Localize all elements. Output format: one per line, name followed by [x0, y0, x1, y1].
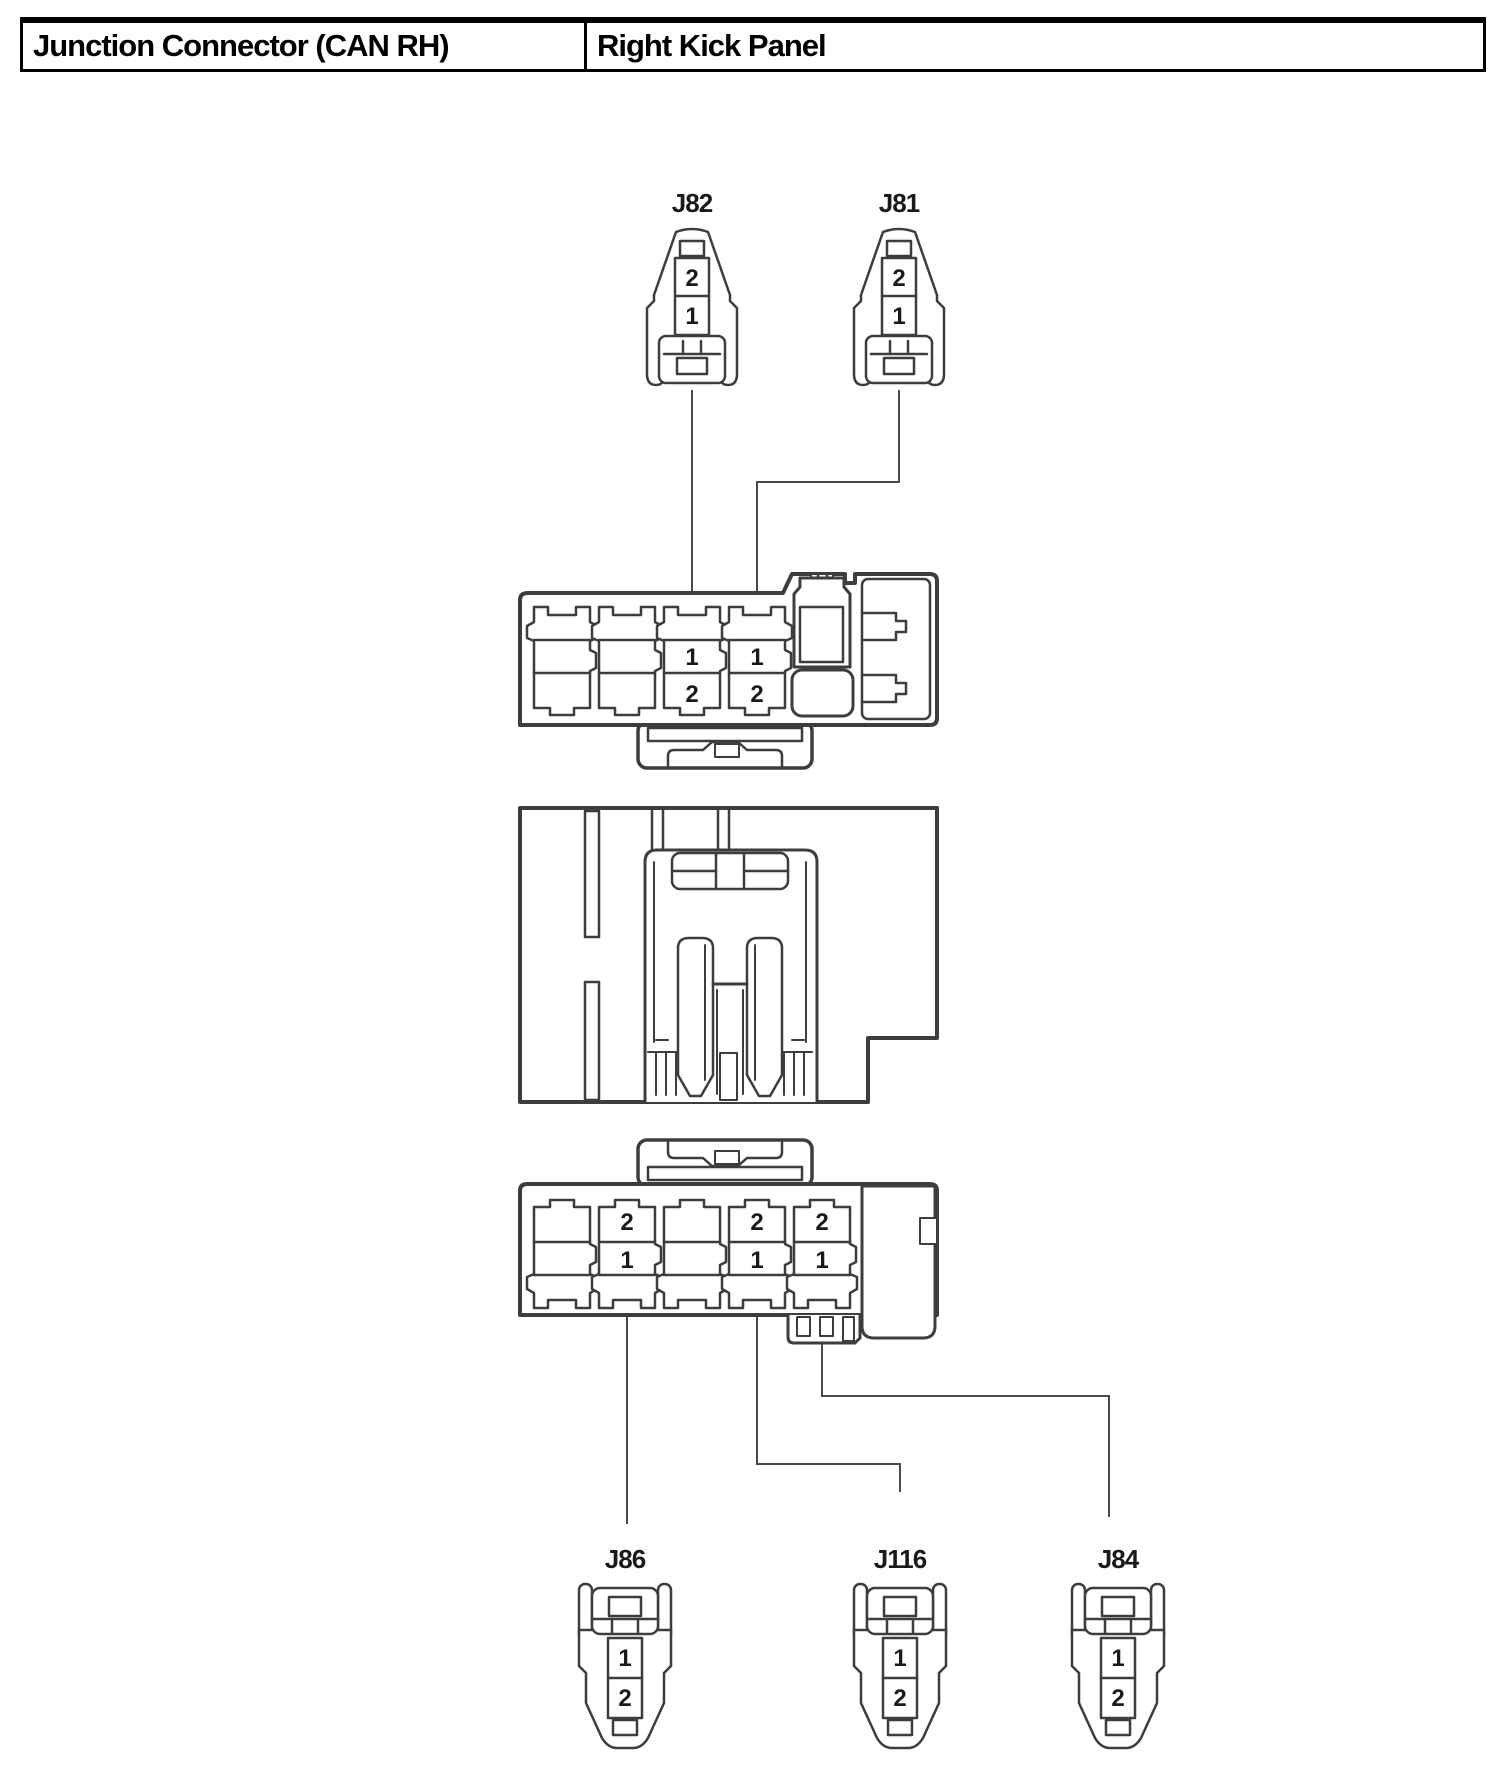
j81-pin-1: 1: [892, 303, 905, 330]
upper-block-mount-tab: [638, 722, 812, 768]
upper-junction-block: [520, 574, 937, 768]
j116-label: J116: [874, 1544, 927, 1574]
j84-label: J84: [1098, 1544, 1140, 1574]
lower-cavity5-pin1: 1: [815, 1247, 828, 1274]
upper-cavity-1: [527, 607, 597, 715]
diagram-canvas: J82 J81 2 1 2 1 1 2 1 2 2 1 2 1 2 1 J86 …: [0, 0, 1504, 1768]
j82-pin-1: 1: [685, 303, 698, 330]
j86-label: J86: [605, 1544, 646, 1574]
upper-block-aux-cavity: [792, 670, 853, 716]
leader-j84: [822, 1343, 1109, 1517]
j81-pin-2: 2: [892, 265, 905, 292]
lower-cavity2-pin2: 2: [620, 1209, 633, 1236]
document-page: Junction Connector (CAN RH) Right Kick P…: [0, 0, 1504, 1768]
lower-cavity-3: [657, 1200, 727, 1308]
lower-block-right-section: [862, 1186, 935, 1338]
j82-label: J82: [672, 188, 713, 218]
lower-cavity4-pin1: 1: [750, 1247, 763, 1274]
lower-block-side-tab: [920, 1218, 937, 1244]
lower-junction-block: [520, 1140, 937, 1343]
lower-cavity-1: [527, 1200, 597, 1308]
j81-label: J81: [879, 188, 920, 218]
j82-pin-2: 2: [685, 265, 698, 292]
upper-block-lock-tower: [794, 574, 850, 667]
j116-pin-2: 2: [893, 1685, 906, 1712]
j84-pin-1: 1: [1111, 1645, 1124, 1672]
upper-cavity4-pin2: 2: [750, 681, 763, 708]
lower-cavity2-pin1: 1: [620, 1247, 633, 1274]
j86-pin-2: 2: [618, 1685, 631, 1712]
j86-pin-1: 1: [618, 1645, 631, 1672]
lower-cavity5-pin2: 2: [815, 1209, 828, 1236]
lower-cavity4-pin2: 2: [750, 1209, 763, 1236]
lower-block-bottom-comb: [788, 1315, 860, 1343]
j116-pin-1: 1: [893, 1645, 906, 1672]
upper-cavity4-pin1: 1: [750, 644, 763, 671]
lower-block-mount-tab: [638, 1140, 812, 1186]
j84-pin-2: 2: [1111, 1685, 1124, 1712]
upper-cavity3-pin2: 2: [685, 681, 698, 708]
middle-junction-block: [520, 808, 937, 1102]
upper-cavity-2: [592, 607, 662, 715]
upper-cavity3-pin1: 1: [685, 644, 698, 671]
